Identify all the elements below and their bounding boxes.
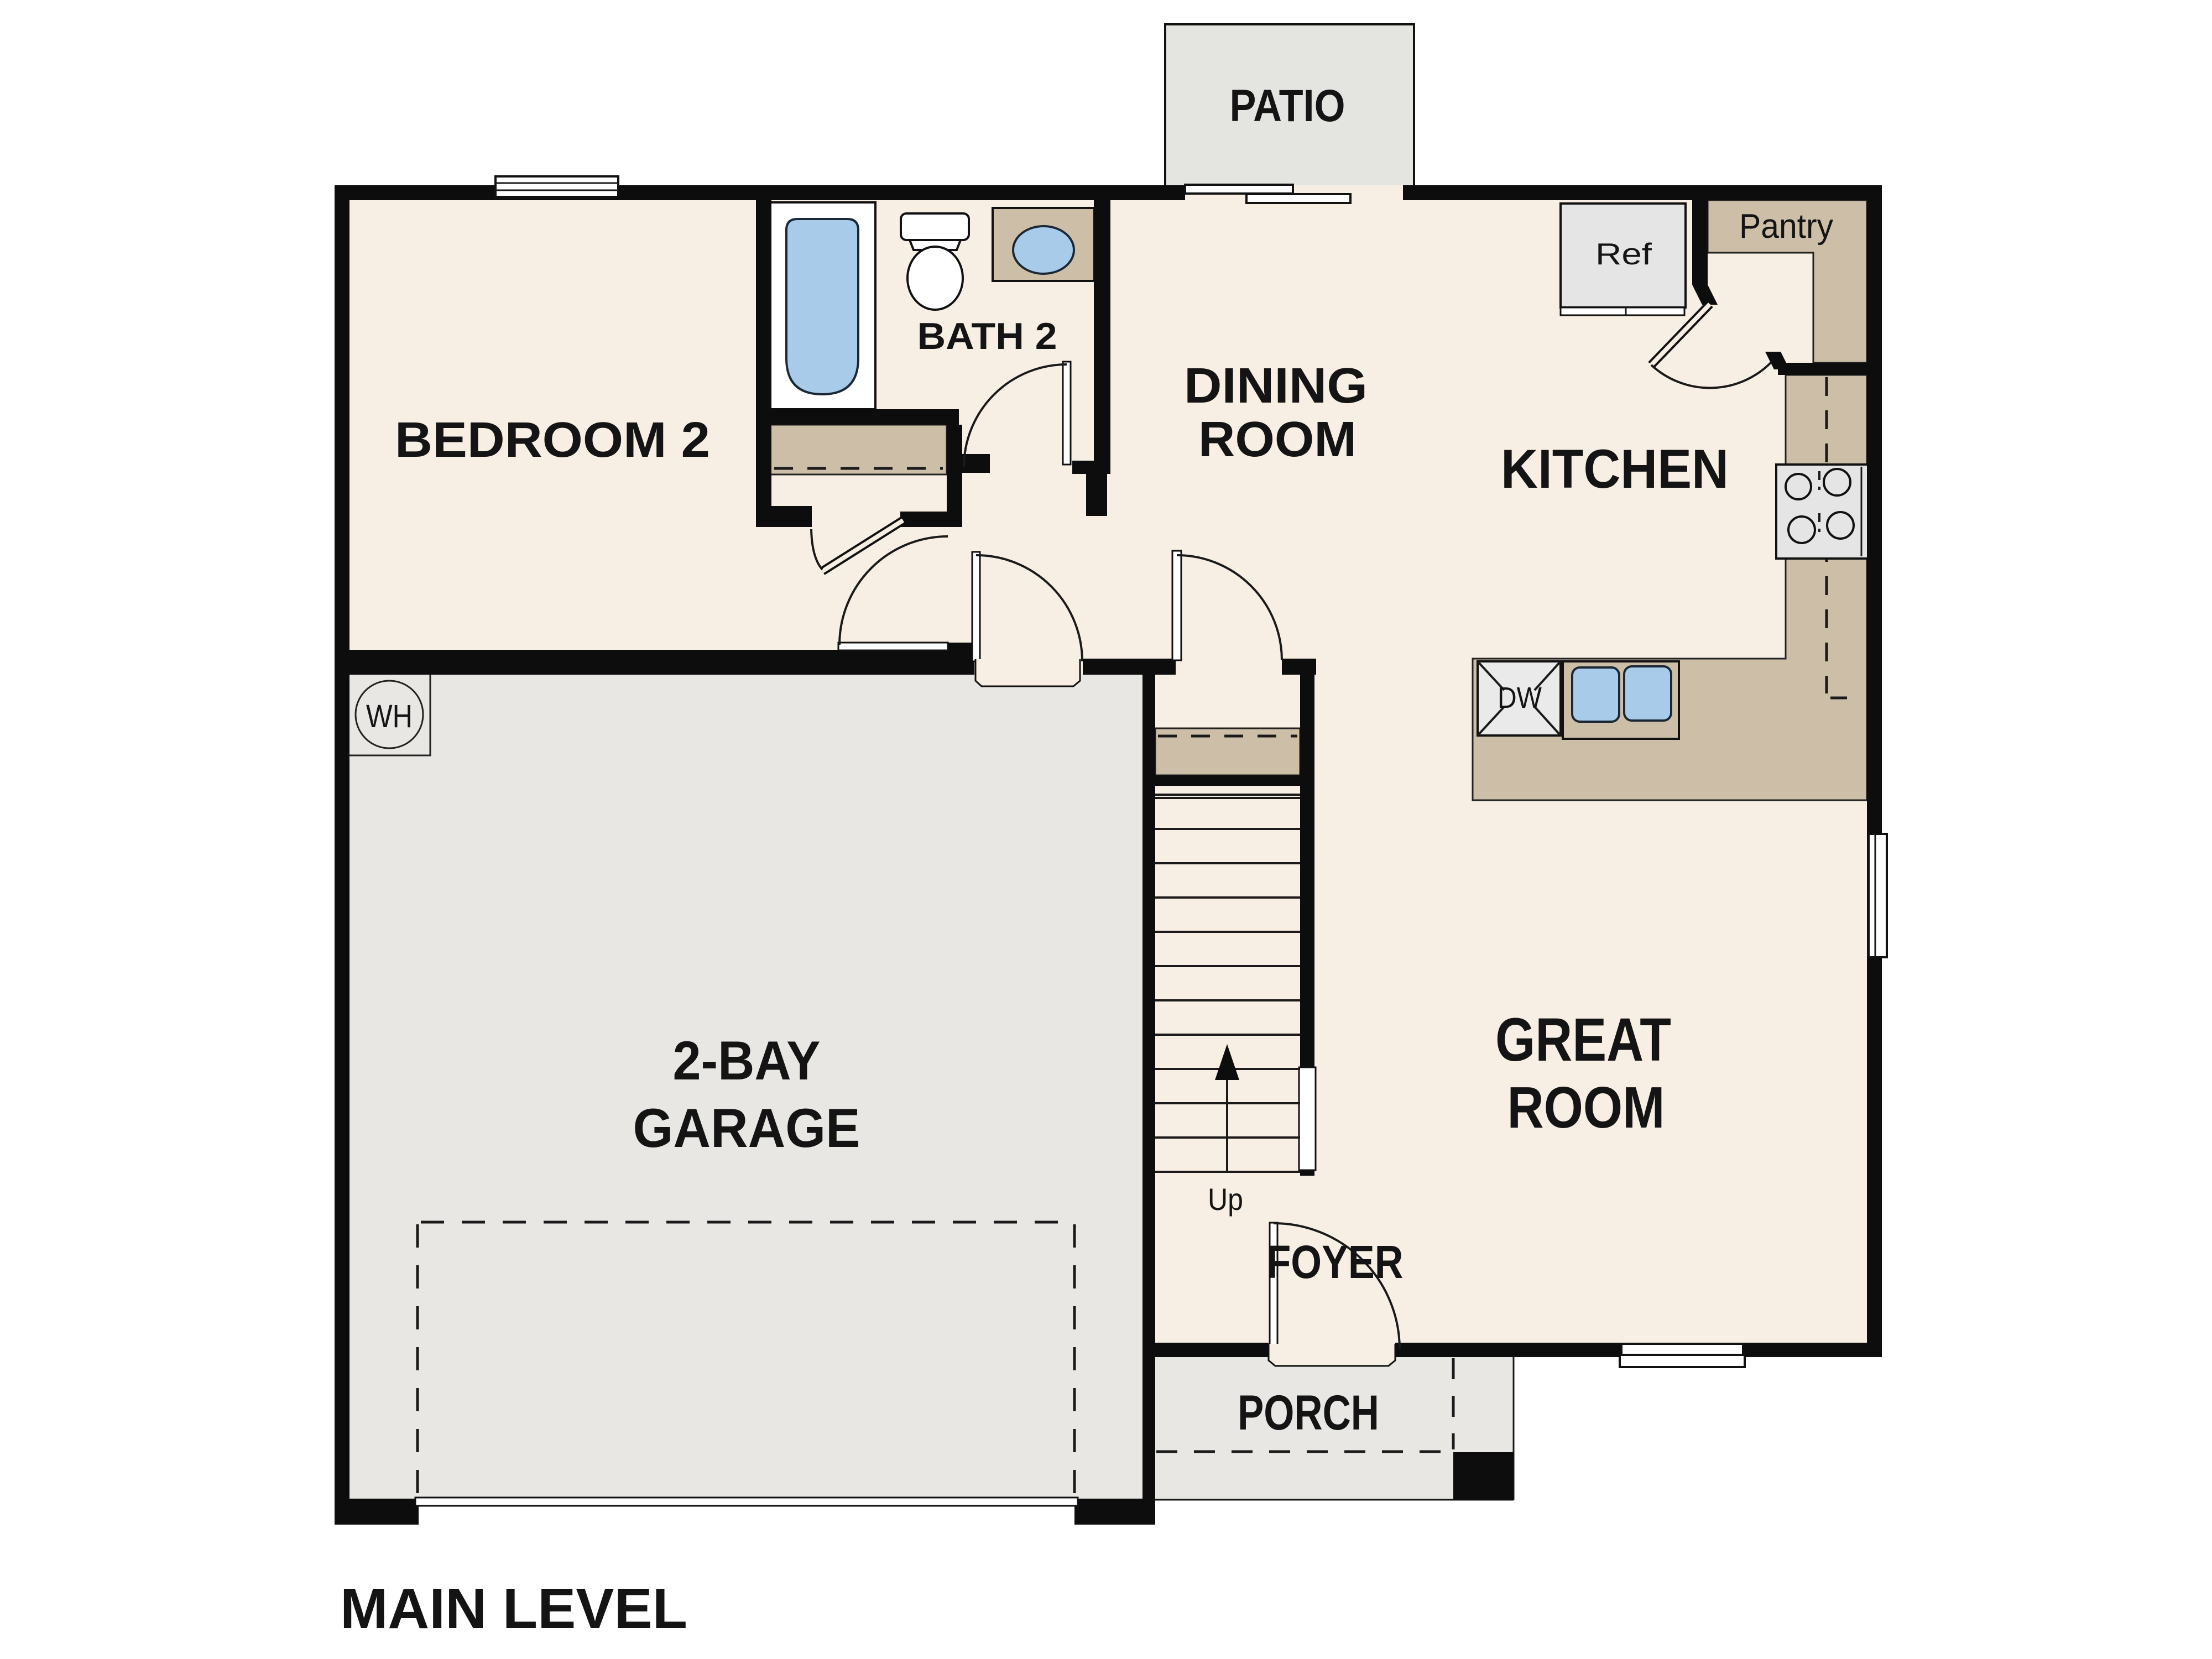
svg-text:Up: Up	[1208, 1182, 1243, 1217]
svg-text:BEDROOM 2: BEDROOM 2	[395, 413, 710, 468]
svg-text:DINING: DINING	[1184, 358, 1368, 414]
svg-text:PATIO: PATIO	[1230, 81, 1345, 131]
svg-text:2-BAY: 2-BAY	[673, 1030, 821, 1091]
svg-text:ROOM: ROOM	[1507, 1075, 1665, 1140]
svg-text:GARAGE: GARAGE	[633, 1097, 860, 1159]
svg-text:Ref: Ref	[1595, 237, 1652, 271]
svg-text:GREAT: GREAT	[1495, 1006, 1671, 1074]
svg-text:ROOM: ROOM	[1198, 412, 1357, 467]
svg-text:WH: WH	[366, 698, 413, 734]
svg-text:FOYER: FOYER	[1267, 1236, 1404, 1288]
svg-text:Pantry: Pantry	[1739, 207, 1833, 246]
svg-text:BATH 2: BATH 2	[917, 315, 1057, 357]
svg-text:KITCHEN: KITCHEN	[1501, 438, 1729, 499]
svg-text:MAIN LEVEL: MAIN LEVEL	[340, 1577, 687, 1640]
svg-text:DW: DW	[1498, 681, 1542, 714]
svg-text:PORCH: PORCH	[1238, 1385, 1379, 1440]
